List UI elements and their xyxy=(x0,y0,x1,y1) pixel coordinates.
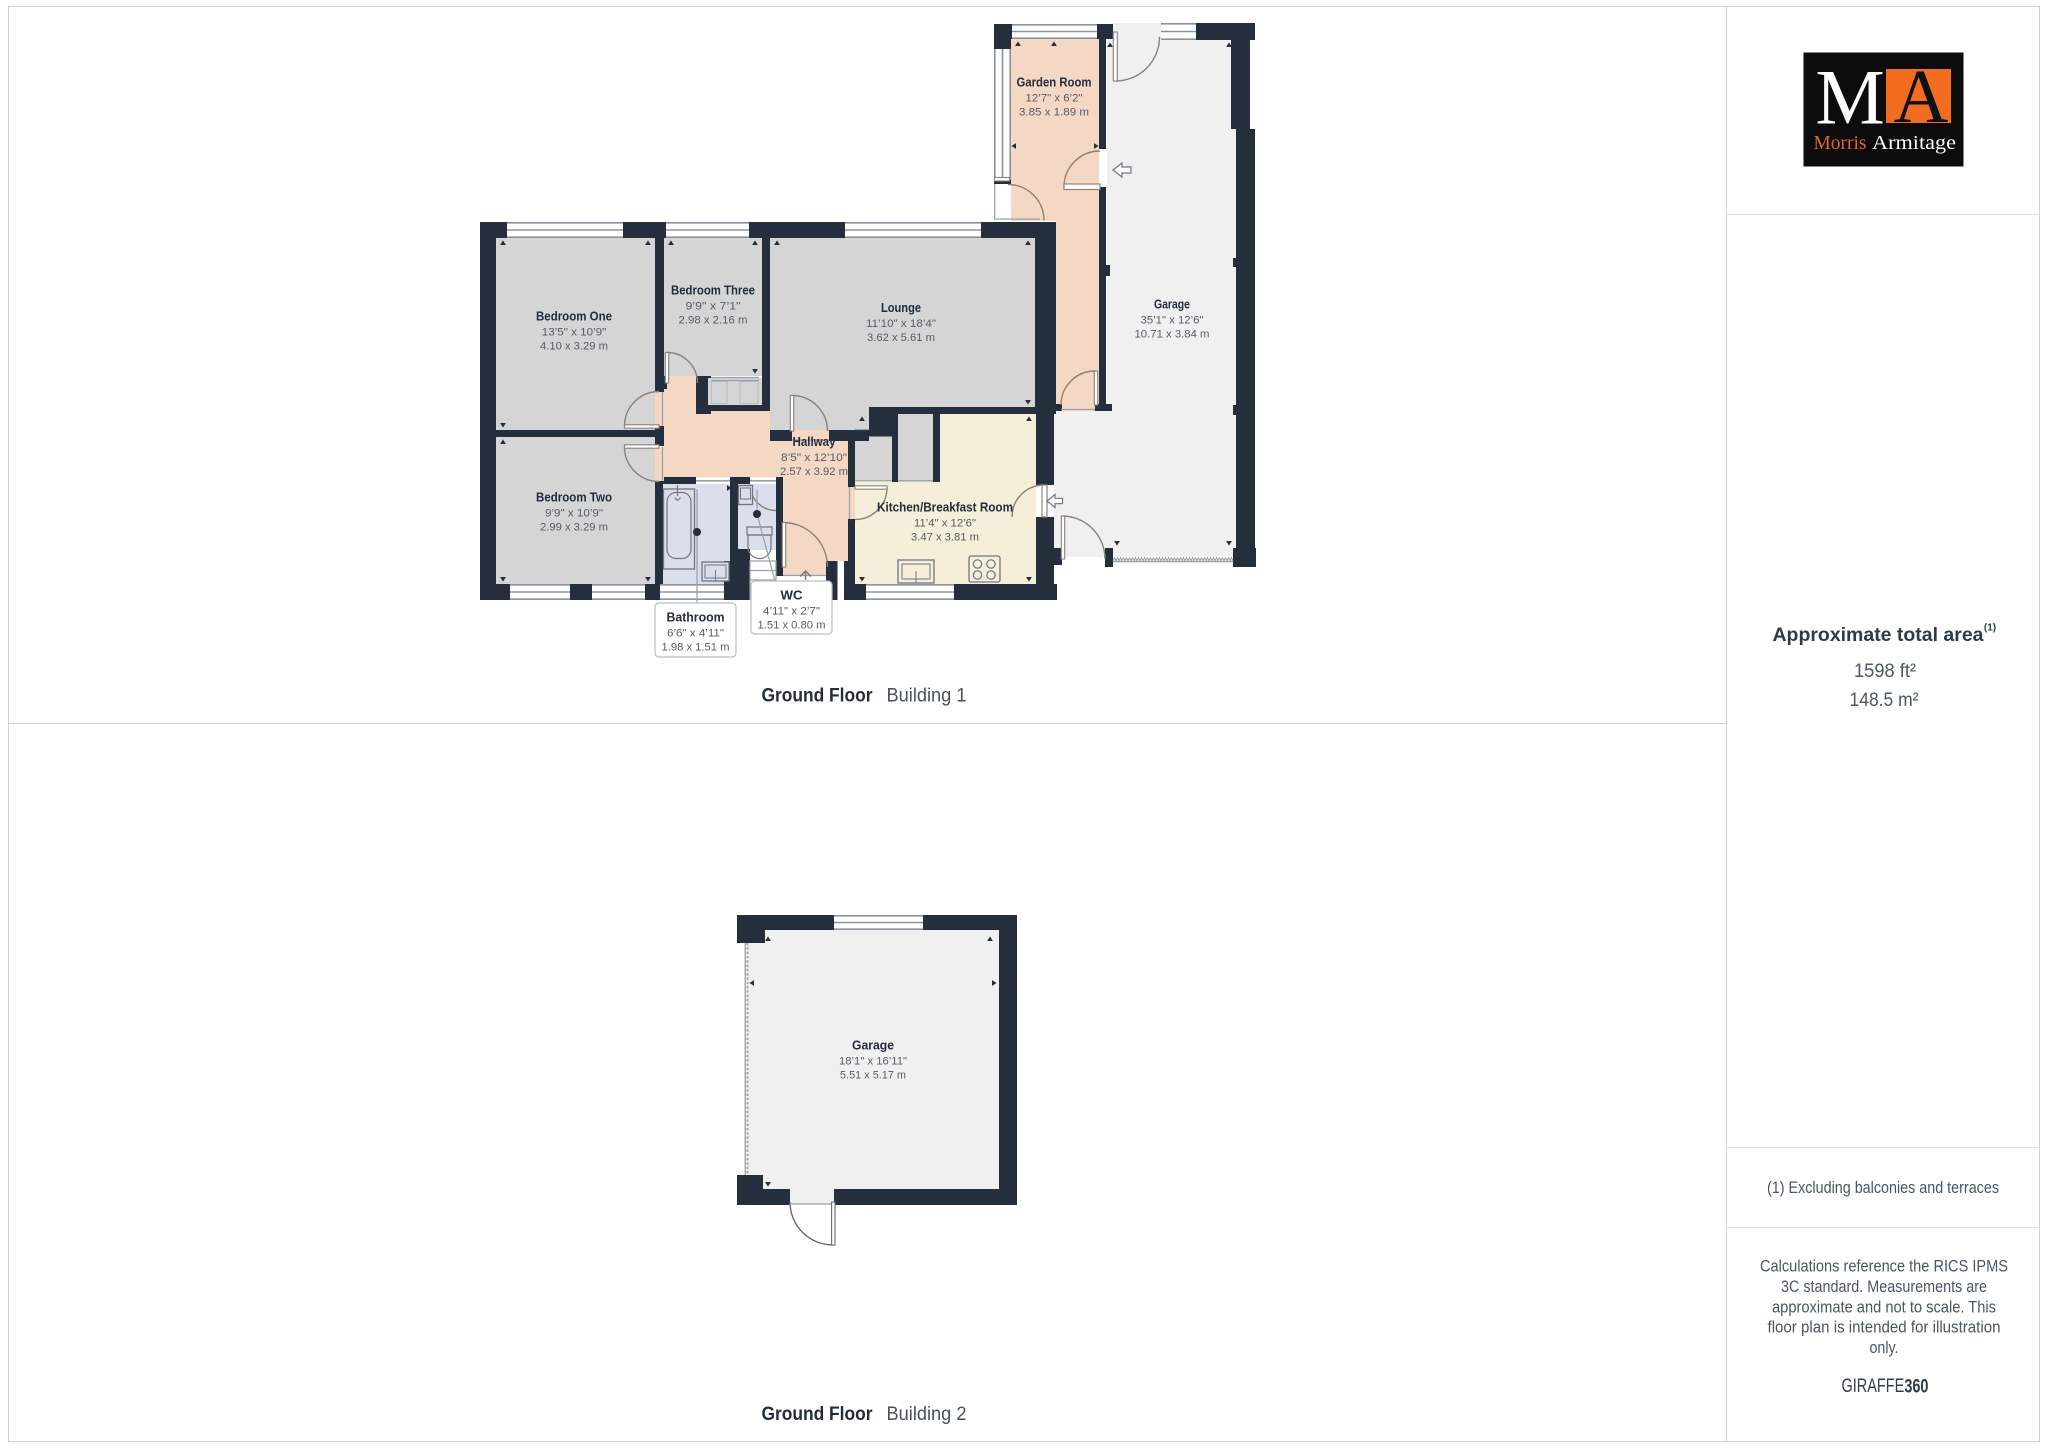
svg-text:4’11" x 2’7": 4’11" x 2’7" xyxy=(763,606,820,618)
svg-text:M: M xyxy=(1815,54,1884,141)
svg-text:Garden Room: Garden Room xyxy=(1017,75,1092,90)
svg-text:3.62 x 5.61 m: 3.62 x 5.61 m xyxy=(867,332,935,344)
svg-text:18’1" x 16’11": 18’1" x 16’11" xyxy=(839,1056,907,1068)
svg-text:Kitchen/Breakfast Room: Kitchen/Breakfast Room xyxy=(877,500,1013,515)
svg-text:3.85 x 1.89 m: 3.85 x 1.89 m xyxy=(1019,107,1089,119)
svg-text:Approximate total area: Approximate total area xyxy=(1773,625,1984,646)
svg-text:2.98 x 2.16 m: 2.98 x 2.16 m xyxy=(679,315,748,327)
svg-text:Garage: Garage xyxy=(1154,297,1190,312)
svg-text:Building 1: Building 1 xyxy=(887,686,967,707)
svg-text:2.57 x 3.92 m: 2.57 x 3.92 m xyxy=(780,466,848,478)
svg-text:Calculations reference the RIC: Calculations reference the RICS IPMS xyxy=(1760,1258,2008,1276)
svg-text:A: A xyxy=(1894,55,1949,139)
svg-text:Bathroom: Bathroom xyxy=(667,610,725,625)
svg-text:Bedroom Three: Bedroom Three xyxy=(671,283,755,298)
svg-text:GIRAFFE360: GIRAFFE360 xyxy=(1842,1376,1929,1397)
svg-text:13’5" x 10’9": 13’5" x 10’9" xyxy=(542,327,607,339)
svg-text:35’1" x 12’6": 35’1" x 12’6" xyxy=(1141,315,1204,327)
svg-text:9’9" x 10’9": 9’9" x 10’9" xyxy=(545,508,603,520)
svg-text:Morris: Morris xyxy=(1814,132,1867,154)
svg-text:8’5" x 12’10": 8’5" x 12’10" xyxy=(781,452,847,464)
svg-text:3.47 x 3.81 m: 3.47 x 3.81 m xyxy=(911,532,979,544)
svg-text:Lounge: Lounge xyxy=(881,300,921,315)
svg-text:4.10 x 3.29 m: 4.10 x 3.29 m xyxy=(540,341,608,353)
svg-text:WC: WC xyxy=(781,588,804,603)
svg-text:3C standard. Measurements are: 3C standard. Measurements are xyxy=(1781,1278,1987,1296)
svg-text:11’4" x 12’6": 11’4" x 12’6" xyxy=(914,518,976,530)
svg-text:1.51 x 0.80 m: 1.51 x 0.80 m xyxy=(758,620,826,632)
svg-text:Building 2: Building 2 xyxy=(887,1404,967,1425)
svg-text:(1): (1) xyxy=(1984,623,1996,634)
svg-text:(1) Excluding balconies and te: (1) Excluding balconies and terraces xyxy=(1767,1178,1999,1197)
svg-text:Hallway: Hallway xyxy=(793,434,837,449)
svg-text:6’6" x 4’11": 6’6" x 4’11" xyxy=(667,628,724,640)
svg-text:Garage: Garage xyxy=(852,1038,894,1053)
svg-text:approximate and not to scale.: approximate and not to scale. This xyxy=(1772,1298,1996,1316)
svg-text:148.5 m²: 148.5 m² xyxy=(1850,689,1919,711)
svg-text:Ground Floor: Ground Floor xyxy=(762,686,874,707)
svg-text:12’7" x 6’2": 12’7" x 6’2" xyxy=(1026,93,1083,105)
svg-text:5.51 x 5.17 m: 5.51 x 5.17 m xyxy=(840,1070,906,1082)
svg-text:floor plan is intended for ill: floor plan is intended for illustration xyxy=(1768,1319,2001,1337)
svg-text:2.99 x 3.29 m: 2.99 x 3.29 m xyxy=(540,522,608,534)
svg-text:11’10" x 18’4": 11’10" x 18’4" xyxy=(866,318,936,330)
svg-text:only.: only. xyxy=(1870,1339,1899,1357)
svg-text:Bedroom Two: Bedroom Two xyxy=(536,490,612,505)
svg-text:9’9" x 7’1": 9’9" x 7’1" xyxy=(686,301,741,313)
svg-text:1.98 x 1.51 m: 1.98 x 1.51 m xyxy=(662,642,730,654)
svg-text:1598 ft²: 1598 ft² xyxy=(1854,660,1916,682)
svg-text:Armitage: Armitage xyxy=(1872,132,1956,154)
svg-text:Ground Floor: Ground Floor xyxy=(762,1404,874,1425)
svg-text:Bedroom One: Bedroom One xyxy=(536,309,612,324)
svg-text:10.71 x 3.84 m: 10.71 x 3.84 m xyxy=(1135,329,1210,341)
